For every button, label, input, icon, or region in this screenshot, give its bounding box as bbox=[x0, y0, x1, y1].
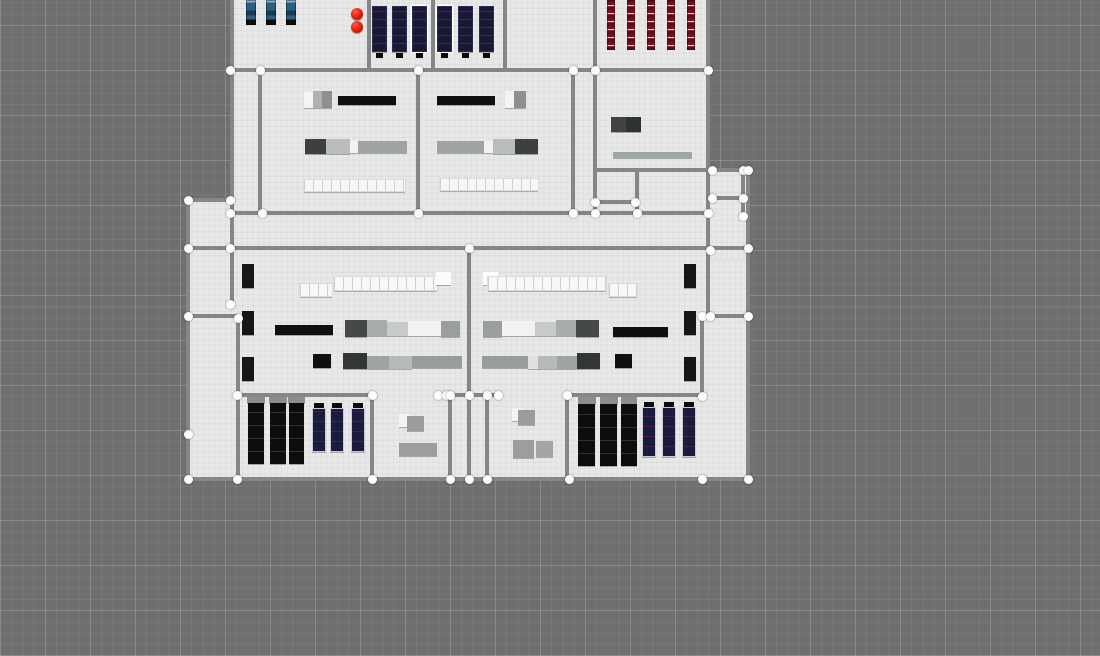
wall-segment[interactable] bbox=[448, 395, 452, 479]
gray-shelf[interactable] bbox=[389, 356, 412, 369]
black-unit[interactable] bbox=[615, 354, 632, 368]
black-wall-shelf[interactable] bbox=[684, 311, 696, 335]
black-cooler[interactable] bbox=[289, 403, 304, 464]
black-wall-shelf[interactable] bbox=[242, 264, 254, 288]
checkout-unit[interactable] bbox=[484, 141, 493, 153]
cooler-cap[interactable] bbox=[288, 396, 305, 403]
wall-node-handle[interactable] bbox=[591, 66, 600, 75]
black-cooler[interactable] bbox=[600, 404, 617, 466]
wall-segment[interactable] bbox=[635, 168, 639, 215]
cabinet[interactable] bbox=[514, 91, 526, 108]
cabinet[interactable] bbox=[505, 91, 514, 108]
wall-node-handle[interactable] bbox=[494, 391, 503, 400]
checkout-unit[interactable] bbox=[576, 320, 599, 337]
black-wall-shelf[interactable] bbox=[242, 311, 254, 335]
red-round-fixture[interactable] bbox=[351, 8, 363, 20]
wall-node-handle[interactable] bbox=[569, 66, 578, 75]
wall-segment[interactable] bbox=[370, 393, 374, 479]
wall-node-handle[interactable] bbox=[465, 391, 474, 400]
wall-node-handle[interactable] bbox=[184, 312, 193, 321]
gray-shelf[interactable] bbox=[367, 356, 389, 369]
red-stock-shelf[interactable] bbox=[607, 0, 615, 50]
checkout-unit[interactable] bbox=[350, 141, 358, 153]
cooler-cap[interactable] bbox=[578, 397, 596, 404]
wall-node-handle[interactable] bbox=[739, 212, 748, 221]
gray-shelf[interactable] bbox=[482, 356, 528, 368]
black-wall-shelf[interactable] bbox=[242, 357, 254, 381]
wall-segment[interactable] bbox=[593, 0, 597, 215]
wall-node-handle[interactable] bbox=[739, 194, 748, 203]
wall-node-handle[interactable] bbox=[233, 475, 242, 484]
wall-node-handle[interactable] bbox=[483, 391, 492, 400]
wall-node-handle[interactable] bbox=[698, 475, 707, 484]
dark-unit[interactable] bbox=[343, 353, 367, 369]
gray-shelf[interactable] bbox=[528, 356, 538, 369]
black-unit-pair[interactable] bbox=[313, 354, 331, 368]
dark-unit[interactable] bbox=[577, 353, 600, 369]
checkout-unit[interactable] bbox=[493, 139, 515, 154]
wall-segment[interactable] bbox=[431, 0, 435, 70]
wall-segment[interactable] bbox=[593, 168, 750, 172]
navy-freezer[interactable] bbox=[479, 6, 494, 52]
cabinet[interactable] bbox=[313, 91, 322, 108]
wall-node-handle[interactable] bbox=[184, 196, 193, 205]
checkout-unit[interactable] bbox=[408, 321, 441, 336]
white-shelf-run[interactable] bbox=[299, 283, 333, 297]
checkout-unit[interactable] bbox=[326, 139, 350, 154]
navy-freezer[interactable] bbox=[437, 6, 452, 52]
wall-node-handle[interactable] bbox=[744, 166, 753, 175]
navy-freezer[interactable] bbox=[392, 6, 407, 52]
navy-cooler[interactable] bbox=[312, 408, 326, 452]
wall-segment[interactable] bbox=[571, 68, 575, 215]
white-shelf-run[interactable] bbox=[487, 276, 607, 291]
wall-node-handle[interactable] bbox=[414, 66, 423, 75]
gray-shelf[interactable] bbox=[412, 356, 462, 368]
navy-freezer[interactable] bbox=[458, 6, 473, 52]
navy-cooler[interactable] bbox=[682, 407, 696, 457]
wall-node-handle[interactable] bbox=[706, 312, 715, 321]
blue-vending-machine[interactable] bbox=[286, 0, 296, 25]
checkout-unit[interactable] bbox=[387, 322, 408, 336]
black-wall-shelf[interactable] bbox=[684, 357, 696, 381]
wall-node-handle[interactable] bbox=[465, 244, 474, 253]
wall-node-handle[interactable] bbox=[744, 312, 753, 321]
wall-node-handle[interactable] bbox=[744, 244, 753, 253]
cooler-cap[interactable] bbox=[269, 396, 287, 403]
gray-cabinet[interactable] bbox=[513, 440, 534, 458]
gray-shelf[interactable] bbox=[557, 356, 577, 369]
checkout-unit[interactable] bbox=[367, 320, 387, 336]
wall-segment[interactable] bbox=[706, 0, 710, 316]
black-cooler[interactable] bbox=[578, 404, 595, 466]
blue-vending-machine[interactable] bbox=[246, 0, 256, 25]
red-round-fixture[interactable] bbox=[351, 21, 363, 33]
wall-segment[interactable] bbox=[565, 393, 702, 397]
red-stock-shelf[interactable] bbox=[647, 0, 655, 50]
checkout-unit[interactable] bbox=[502, 321, 535, 336]
checkout-unit[interactable] bbox=[358, 141, 407, 153]
wall-node-handle[interactable] bbox=[465, 475, 474, 484]
dark-cabinet[interactable] bbox=[611, 117, 626, 132]
small-cabinet[interactable] bbox=[407, 416, 424, 431]
wall-node-handle[interactable] bbox=[226, 196, 235, 205]
floorplan-editor-canvas[interactable] bbox=[0, 0, 1100, 656]
gray-cabinet[interactable] bbox=[536, 441, 553, 457]
wall-node-handle[interactable] bbox=[226, 209, 235, 218]
wall-node-handle[interactable] bbox=[446, 391, 455, 400]
cooler-cap[interactable] bbox=[247, 396, 265, 403]
wall-node-handle[interactable] bbox=[184, 244, 193, 253]
navy-freezer[interactable] bbox=[372, 6, 387, 52]
red-stock-shelf[interactable] bbox=[627, 0, 635, 50]
navy-cooler[interactable] bbox=[330, 408, 344, 452]
cooler-cap[interactable] bbox=[600, 397, 618, 404]
checkout-unit[interactable] bbox=[515, 139, 538, 154]
checkout-unit[interactable] bbox=[437, 141, 484, 153]
cooler-cap[interactable] bbox=[621, 397, 637, 404]
black-cooler[interactable] bbox=[248, 403, 264, 464]
checkout-unit[interactable] bbox=[556, 320, 576, 336]
wall-node-handle[interactable] bbox=[233, 391, 242, 400]
wall-node-handle[interactable] bbox=[704, 209, 713, 218]
wall-segment[interactable] bbox=[186, 314, 238, 318]
wall-node-handle[interactable] bbox=[226, 300, 235, 309]
wall-segment[interactable] bbox=[230, 68, 710, 72]
wall-node-handle[interactable] bbox=[226, 244, 235, 253]
black-counter[interactable] bbox=[338, 96, 396, 105]
dark-cabinet[interactable] bbox=[626, 117, 641, 132]
wall-segment[interactable] bbox=[565, 393, 569, 479]
black-wall-shelf[interactable] bbox=[684, 264, 696, 288]
white-shelf-run[interactable] bbox=[608, 283, 638, 297]
red-stock-shelf[interactable] bbox=[667, 0, 675, 50]
wall-node-handle[interactable] bbox=[258, 209, 267, 218]
wall-node-handle[interactable] bbox=[698, 392, 707, 401]
black-counter[interactable] bbox=[437, 96, 495, 105]
gray-bar[interactable] bbox=[399, 443, 437, 456]
cabinet[interactable] bbox=[304, 92, 313, 108]
black-counter[interactable] bbox=[275, 325, 333, 335]
wall-node-handle[interactable] bbox=[569, 209, 578, 218]
wall-segment[interactable] bbox=[367, 0, 371, 70]
cabinet[interactable] bbox=[322, 91, 332, 108]
navy-cooler[interactable] bbox=[662, 407, 676, 457]
wall-node-handle[interactable] bbox=[414, 209, 423, 218]
wall-node-handle[interactable] bbox=[704, 66, 713, 75]
black-counter[interactable] bbox=[613, 327, 668, 337]
wall-node-handle[interactable] bbox=[368, 391, 377, 400]
wall-segment[interactable] bbox=[237, 393, 372, 397]
wall-node-handle[interactable] bbox=[234, 314, 243, 323]
wall-node-handle[interactable] bbox=[706, 246, 715, 255]
navy-freezer[interactable] bbox=[412, 6, 427, 52]
wall-node-handle[interactable] bbox=[226, 66, 235, 75]
wall-node-handle[interactable] bbox=[483, 475, 492, 484]
wall-node-handle[interactable] bbox=[591, 209, 600, 218]
wall-node-handle[interactable] bbox=[591, 198, 600, 207]
navy-cooler[interactable] bbox=[642, 407, 656, 457]
wall-segment[interactable] bbox=[230, 0, 234, 306]
wall-segment[interactable] bbox=[258, 68, 262, 215]
wall-node-handle[interactable] bbox=[565, 475, 574, 484]
gray-bar[interactable] bbox=[613, 152, 692, 158]
black-cooler[interactable] bbox=[621, 404, 637, 466]
wall-segment[interactable] bbox=[485, 395, 489, 479]
black-cooler[interactable] bbox=[270, 403, 286, 464]
checkout-unit[interactable] bbox=[305, 139, 326, 154]
small-cabinet[interactable] bbox=[518, 410, 535, 425]
navy-cooler[interactable] bbox=[351, 408, 365, 452]
wall-node-handle[interactable] bbox=[256, 66, 265, 75]
wall-node-handle[interactable] bbox=[184, 475, 193, 484]
wall-node-handle[interactable] bbox=[446, 475, 455, 484]
white-shelf-run[interactable] bbox=[303, 179, 406, 192]
wall-node-handle[interactable] bbox=[744, 475, 753, 484]
white-shelf-run[interactable] bbox=[333, 276, 438, 291]
checkout-unit[interactable] bbox=[535, 322, 556, 336]
wall-segment[interactable] bbox=[700, 316, 704, 396]
wall-node-handle[interactable] bbox=[368, 475, 377, 484]
wall-node-handle[interactable] bbox=[708, 166, 717, 175]
wall-segment[interactable] bbox=[503, 0, 507, 70]
wall-node-handle[interactable] bbox=[708, 194, 717, 203]
checkout-unit[interactable] bbox=[345, 320, 367, 337]
checkout-unit[interactable] bbox=[441, 321, 460, 337]
wall-segment[interactable] bbox=[416, 68, 420, 215]
wall-node-handle[interactable] bbox=[563, 391, 572, 400]
shelf-endcap[interactable] bbox=[436, 272, 451, 285]
gray-shelf[interactable] bbox=[538, 356, 557, 369]
checkout-unit[interactable] bbox=[483, 321, 502, 337]
blue-vending-machine[interactable] bbox=[266, 0, 276, 25]
red-stock-shelf[interactable] bbox=[687, 0, 695, 50]
wall-node-handle[interactable] bbox=[633, 209, 642, 218]
wall-node-handle[interactable] bbox=[184, 430, 193, 439]
wall-segment[interactable] bbox=[467, 246, 471, 479]
white-shelf-run[interactable] bbox=[439, 178, 539, 191]
wall-node-handle[interactable] bbox=[631, 198, 640, 207]
